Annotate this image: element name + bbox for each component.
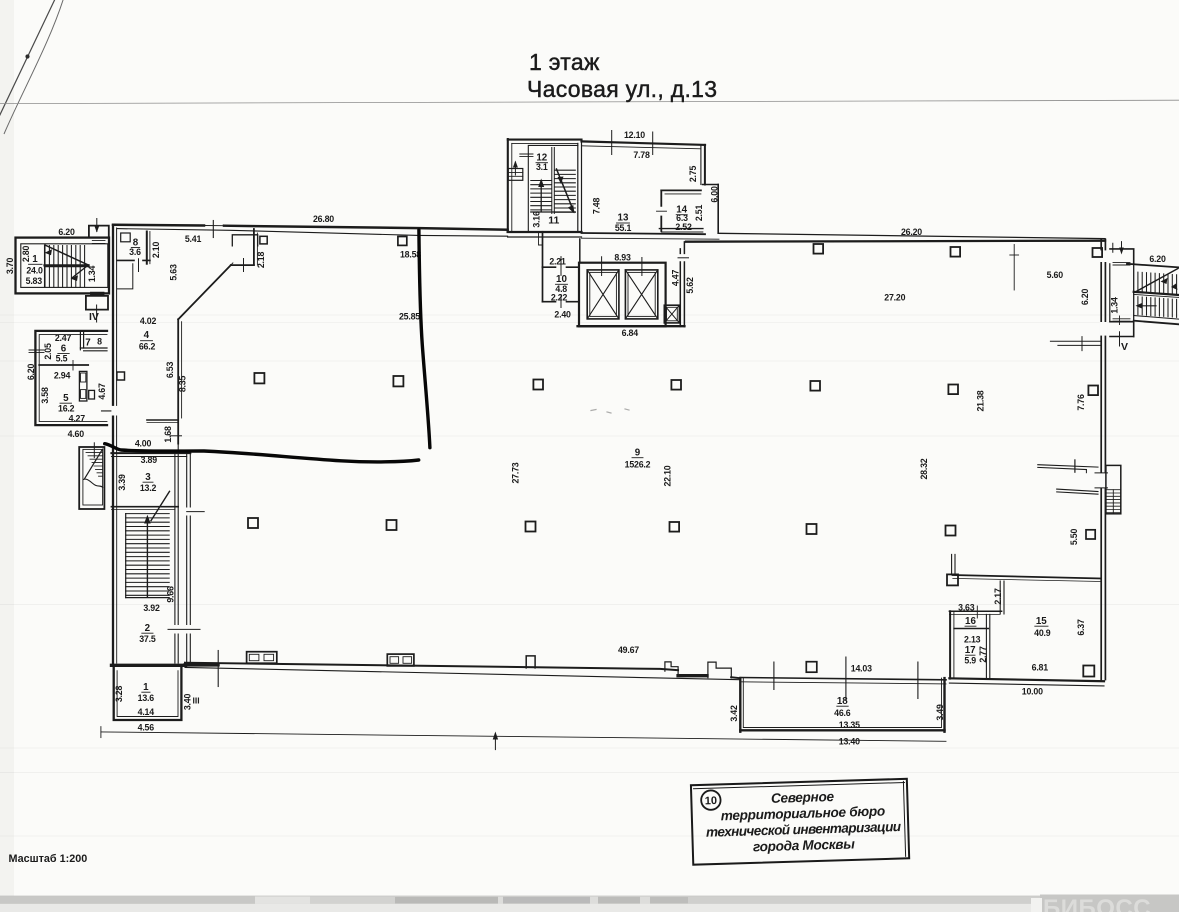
svg-text:3.42: 3.42: [729, 705, 739, 722]
svg-text:4.56: 4.56: [138, 723, 155, 733]
svg-text:5.5: 5.5: [56, 354, 68, 364]
svg-text:27.20: 27.20: [884, 293, 905, 303]
svg-text:3.28: 3.28: [114, 686, 124, 703]
svg-text:5.50: 5.50: [1069, 529, 1079, 546]
svg-text:2.13: 2.13: [964, 635, 981, 645]
svg-text:13.2: 13.2: [140, 483, 157, 493]
svg-text:7.78: 7.78: [633, 150, 650, 160]
svg-text:3.63: 3.63: [958, 602, 975, 612]
svg-text:2.75: 2.75: [688, 166, 698, 183]
svg-text:2.77: 2.77: [978, 646, 988, 663]
svg-text:18: 18: [837, 696, 848, 707]
svg-text:13.6: 13.6: [138, 693, 155, 703]
svg-text:17: 17: [965, 645, 976, 656]
svg-text:7.76: 7.76: [1076, 394, 1086, 411]
svg-text:6.20: 6.20: [58, 227, 75, 237]
svg-text:16.2: 16.2: [58, 404, 75, 414]
svg-text:8.93: 8.93: [614, 253, 631, 263]
svg-text:16: 16: [965, 616, 976, 627]
svg-text:7: 7: [85, 338, 91, 349]
svg-text:14.03: 14.03: [851, 664, 872, 674]
svg-text:11: 11: [548, 215, 559, 227]
svg-text:города Москвы: города Москвы: [753, 836, 856, 854]
svg-text:IV: IV: [89, 311, 99, 323]
svg-text:2.22: 2.22: [551, 292, 568, 302]
svg-text:V: V: [1121, 341, 1128, 353]
svg-text:1526.2: 1526.2: [625, 460, 651, 470]
svg-text:Часовая ул., д.13: Часовая ул., д.13: [527, 76, 717, 102]
svg-text:8.35: 8.35: [178, 376, 188, 393]
svg-text:2.17: 2.17: [993, 588, 1003, 605]
svg-text:5.63: 5.63: [169, 264, 179, 281]
svg-text:10: 10: [705, 795, 718, 807]
svg-text:2.94: 2.94: [54, 371, 71, 381]
svg-text:4.27: 4.27: [69, 414, 86, 424]
svg-text:25.85: 25.85: [399, 312, 420, 322]
svg-text:40.9: 40.9: [1034, 628, 1051, 638]
svg-text:12.10: 12.10: [624, 130, 645, 140]
svg-text:2.40: 2.40: [554, 310, 571, 320]
svg-text:5.60: 5.60: [1047, 270, 1064, 280]
svg-text:1.34: 1.34: [87, 266, 97, 283]
svg-text:46.6: 46.6: [834, 708, 851, 718]
svg-text:Масштаб 1:200: Масштаб 1:200: [9, 853, 88, 865]
svg-text:9.66: 9.66: [166, 586, 176, 603]
svg-text:37.5: 37.5: [139, 634, 156, 644]
svg-text:БИБОСС: БИБОСС: [1043, 895, 1151, 912]
svg-text:21.38: 21.38: [976, 390, 986, 411]
svg-text:27.73: 27.73: [511, 462, 521, 483]
svg-text:26.80: 26.80: [313, 214, 334, 224]
svg-text:3.92: 3.92: [143, 603, 160, 613]
svg-text:6.84: 6.84: [622, 328, 639, 338]
svg-text:1.34: 1.34: [1109, 297, 1119, 314]
svg-text:4: 4: [144, 330, 150, 341]
svg-text:6.53: 6.53: [165, 362, 175, 379]
svg-text:3.6: 3.6: [129, 247, 141, 257]
svg-text:3.89: 3.89: [141, 455, 158, 465]
svg-text:2.21: 2.21: [549, 256, 566, 266]
svg-text:13.35: 13.35: [839, 720, 860, 730]
svg-text:5.41: 5.41: [185, 234, 202, 244]
svg-text:2.52: 2.52: [675, 222, 692, 232]
svg-text:4.00: 4.00: [135, 439, 152, 449]
svg-text:3.16: 3.16: [531, 211, 541, 228]
svg-text:5.62: 5.62: [685, 277, 695, 294]
svg-text:3.70: 3.70: [5, 258, 15, 275]
svg-text:3.1: 3.1: [536, 162, 548, 172]
svg-text:55.1: 55.1: [615, 223, 632, 233]
svg-text:2.47: 2.47: [55, 333, 72, 343]
svg-text:15: 15: [1036, 616, 1047, 627]
svg-text:3: 3: [145, 472, 151, 483]
svg-text:4.47: 4.47: [670, 270, 680, 287]
svg-text:22.10: 22.10: [663, 465, 673, 486]
svg-text:13: 13: [618, 213, 629, 224]
svg-text:2.51: 2.51: [694, 205, 704, 222]
svg-text:1: 1: [32, 254, 38, 265]
svg-text:1.68: 1.68: [163, 426, 173, 443]
svg-text:6.20: 6.20: [26, 364, 36, 381]
svg-text:5.83: 5.83: [26, 276, 43, 286]
svg-text:2: 2: [145, 623, 151, 634]
svg-text:7.48: 7.48: [592, 198, 602, 215]
svg-text:1 этаж: 1 этаж: [529, 49, 600, 75]
svg-text:10.00: 10.00: [1022, 687, 1043, 697]
svg-text:24.0: 24.0: [26, 266, 43, 276]
svg-text:1: 1: [143, 682, 149, 693]
svg-text:3.58: 3.58: [40, 387, 50, 404]
svg-text:5.9: 5.9: [964, 656, 976, 666]
svg-text:2.10: 2.10: [151, 242, 161, 259]
svg-text:49.67: 49.67: [618, 645, 639, 655]
svg-text:9: 9: [635, 448, 641, 459]
svg-text:4.02: 4.02: [140, 316, 157, 326]
svg-text:3.39: 3.39: [117, 474, 127, 491]
svg-text:Северное: Северное: [771, 789, 835, 806]
svg-text:5: 5: [63, 393, 69, 404]
svg-text:4.60: 4.60: [68, 429, 85, 439]
svg-text:3.40: 3.40: [182, 694, 192, 711]
svg-text:6.81: 6.81: [1032, 663, 1049, 673]
svg-text:8: 8: [97, 337, 102, 347]
svg-text:6.37: 6.37: [1076, 619, 1086, 636]
svg-text:2.05: 2.05: [43, 343, 53, 360]
svg-text:3.49: 3.49: [935, 704, 945, 721]
svg-text:4.67: 4.67: [97, 383, 107, 400]
svg-text:6.20: 6.20: [1149, 254, 1166, 264]
svg-text:2.18: 2.18: [256, 252, 266, 269]
svg-text:26.20: 26.20: [901, 227, 922, 237]
svg-text:2.80: 2.80: [21, 246, 31, 263]
svg-text:6.20: 6.20: [1080, 289, 1090, 306]
svg-text:III: III: [193, 696, 200, 706]
svg-text:6.00: 6.00: [709, 186, 719, 203]
svg-text:13.40: 13.40: [839, 737, 860, 747]
svg-text:66.2: 66.2: [139, 342, 156, 352]
svg-text:28.32: 28.32: [919, 458, 929, 479]
svg-text:4.14: 4.14: [138, 707, 155, 717]
